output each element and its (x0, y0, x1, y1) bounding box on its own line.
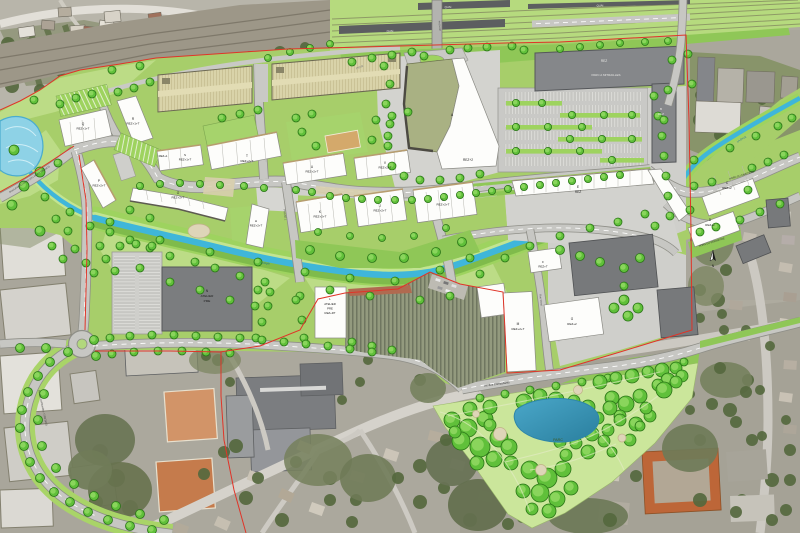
svg-text:REZ+2+T: REZ+2+T (171, 196, 184, 200)
svg-text:REZ+1+T: REZ+1+T (179, 158, 192, 162)
svg-text:REZ: REZ (658, 112, 664, 116)
svg-text:REZ+2+T: REZ+2+T (313, 215, 326, 219)
svg-text:S: S (184, 153, 186, 157)
svg-text:REZ+2+T: REZ+2+T (511, 327, 524, 331)
svg-text:ATELIER: ATELIER (201, 294, 214, 298)
svg-text:QUAI: QUAI (386, 29, 393, 33)
svg-text:REZ+1+T: REZ+1+T (126, 122, 139, 126)
svg-text:REZ+2+T: REZ+2+T (92, 184, 105, 188)
svg-text:REZ: REZ (575, 190, 581, 194)
svg-text:ATELIER: ATELIER (324, 302, 335, 306)
svg-text:REZ+RT: REZ+RT (325, 311, 336, 315)
svg-text:PARC: PARC (553, 438, 563, 442)
svg-text:PME: PME (204, 299, 211, 303)
svg-text:REZ+2: REZ+2 (705, 223, 715, 227)
svg-text:T: T (246, 154, 248, 158)
svg-text:REZ+2+T: REZ+2+T (250, 224, 263, 228)
svg-text:M: M (517, 322, 520, 326)
svg-text:REZ+2+T: REZ+2+T (378, 166, 391, 170)
svg-text:PRE: PRE (327, 307, 333, 311)
svg-text:REZ+1: REZ+1 (159, 154, 168, 158)
svg-text:REZ+2+T: REZ+2+T (373, 209, 386, 213)
svg-text:REZ+2+T: REZ+2+T (305, 170, 318, 174)
svg-text:QUAI: QUAI (596, 3, 603, 7)
svg-text:QUAI: QUAI (444, 5, 451, 9)
svg-text:B: B (660, 107, 662, 111)
svg-text:PARC A MITRAILLES: PARC A MITRAILLES (592, 73, 621, 77)
svg-text:H: H (255, 219, 257, 223)
svg-text:P: P (98, 179, 100, 183)
svg-text:REZ+2+T: REZ+2+T (240, 159, 253, 163)
svg-text:REZ: REZ (601, 59, 607, 63)
svg-text:REZ+2: REZ+2 (463, 158, 473, 162)
svg-text:F: F (542, 260, 544, 264)
svg-text:REZ+1+T: REZ+1+T (76, 127, 89, 131)
svg-text:REZ+T: REZ+T (538, 265, 547, 269)
svg-text:REZ+2: REZ+2 (567, 322, 577, 326)
svg-text:REZ+2: REZ+2 (722, 186, 732, 190)
svg-text:REZ+2+T: REZ+2+T (436, 203, 449, 207)
svg-text:I: I (443, 198, 444, 202)
